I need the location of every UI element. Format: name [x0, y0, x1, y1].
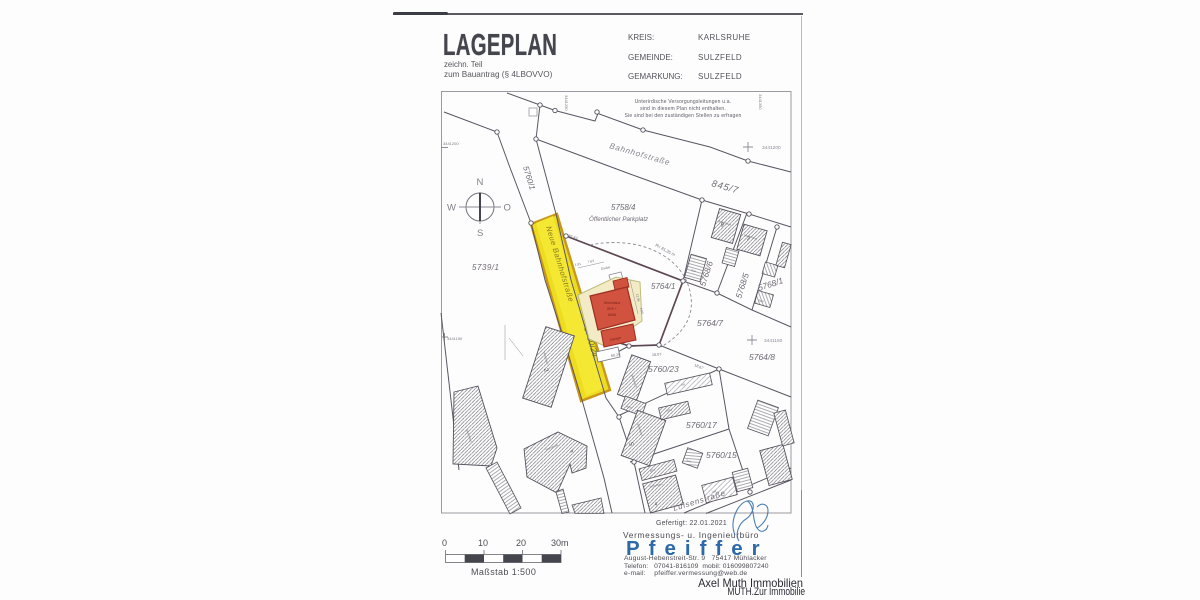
svg-text:S: S [477, 228, 483, 239]
svg-text:3441200: 3441200 [762, 145, 781, 151]
svg-text:5739/1: 5739/1 [472, 263, 499, 272]
svg-text:5760/15: 5760/15 [706, 450, 737, 460]
svg-text:5768/5: 5768/5 [733, 272, 751, 300]
svg-text:Sie sind bei den zuständigen S: Sie sind bei den zuständigen Stellen zu … [625, 113, 742, 119]
svg-text:3441350: 3441350 [758, 94, 763, 110]
svg-text:3441200: 3441200 [443, 141, 459, 146]
svg-text:Unterirdische Versorgungsleitu: Unterirdische Versorgungsleitungen u.a. [635, 99, 732, 105]
svg-text:3441150: 3441150 [447, 336, 463, 341]
svg-text:O: O [504, 203, 511, 214]
svg-text:3441250: 3441250 [564, 95, 569, 111]
svg-text:5760/23: 5760/23 [648, 364, 679, 374]
svg-text:7.63: 7.63 [587, 259, 594, 264]
svg-text:3441150: 3441150 [764, 338, 783, 344]
svg-text:R= 81,35 m: R= 81,35 m [655, 242, 677, 257]
svg-text:5760/1: 5760/1 [521, 165, 537, 191]
svg-text:BFE +: BFE + [607, 307, 617, 311]
svg-text:Gaube: Gaube [600, 265, 610, 271]
svg-text:16.07: 16.07 [652, 353, 662, 357]
svg-text:5764/8: 5764/8 [749, 352, 775, 362]
svg-text:W: W [447, 203, 456, 214]
svg-text:845/7: 845/7 [710, 178, 740, 196]
svg-text:5764/7: 5764/7 [697, 318, 723, 328]
svg-text:5758/4: 5758/4 [611, 203, 636, 212]
svg-text:N: N [477, 177, 484, 188]
svg-text:18.67: 18.67 [694, 363, 704, 370]
svg-text:WKlA: WKlA [608, 313, 617, 317]
svg-text:Bahnhofstraße: Bahnhofstraße [608, 141, 671, 167]
svg-text:85.83: 85.83 [568, 234, 578, 241]
svg-text:5760/17: 5760/17 [686, 420, 717, 430]
svg-text:5764/1: 5764/1 [651, 282, 675, 291]
svg-text:Wohnhaus: Wohnhaus [604, 301, 620, 305]
svg-text:5768/1: 5768/1 [757, 275, 785, 293]
svg-text:1.51: 1.51 [574, 262, 581, 267]
svg-text:Öffentlicher Parkplatz: Öffentlicher Parkplatz [589, 216, 649, 223]
svg-text:sind in diesem Plan nicht enth: sind in diesem Plan nicht enthalten. [640, 106, 726, 112]
